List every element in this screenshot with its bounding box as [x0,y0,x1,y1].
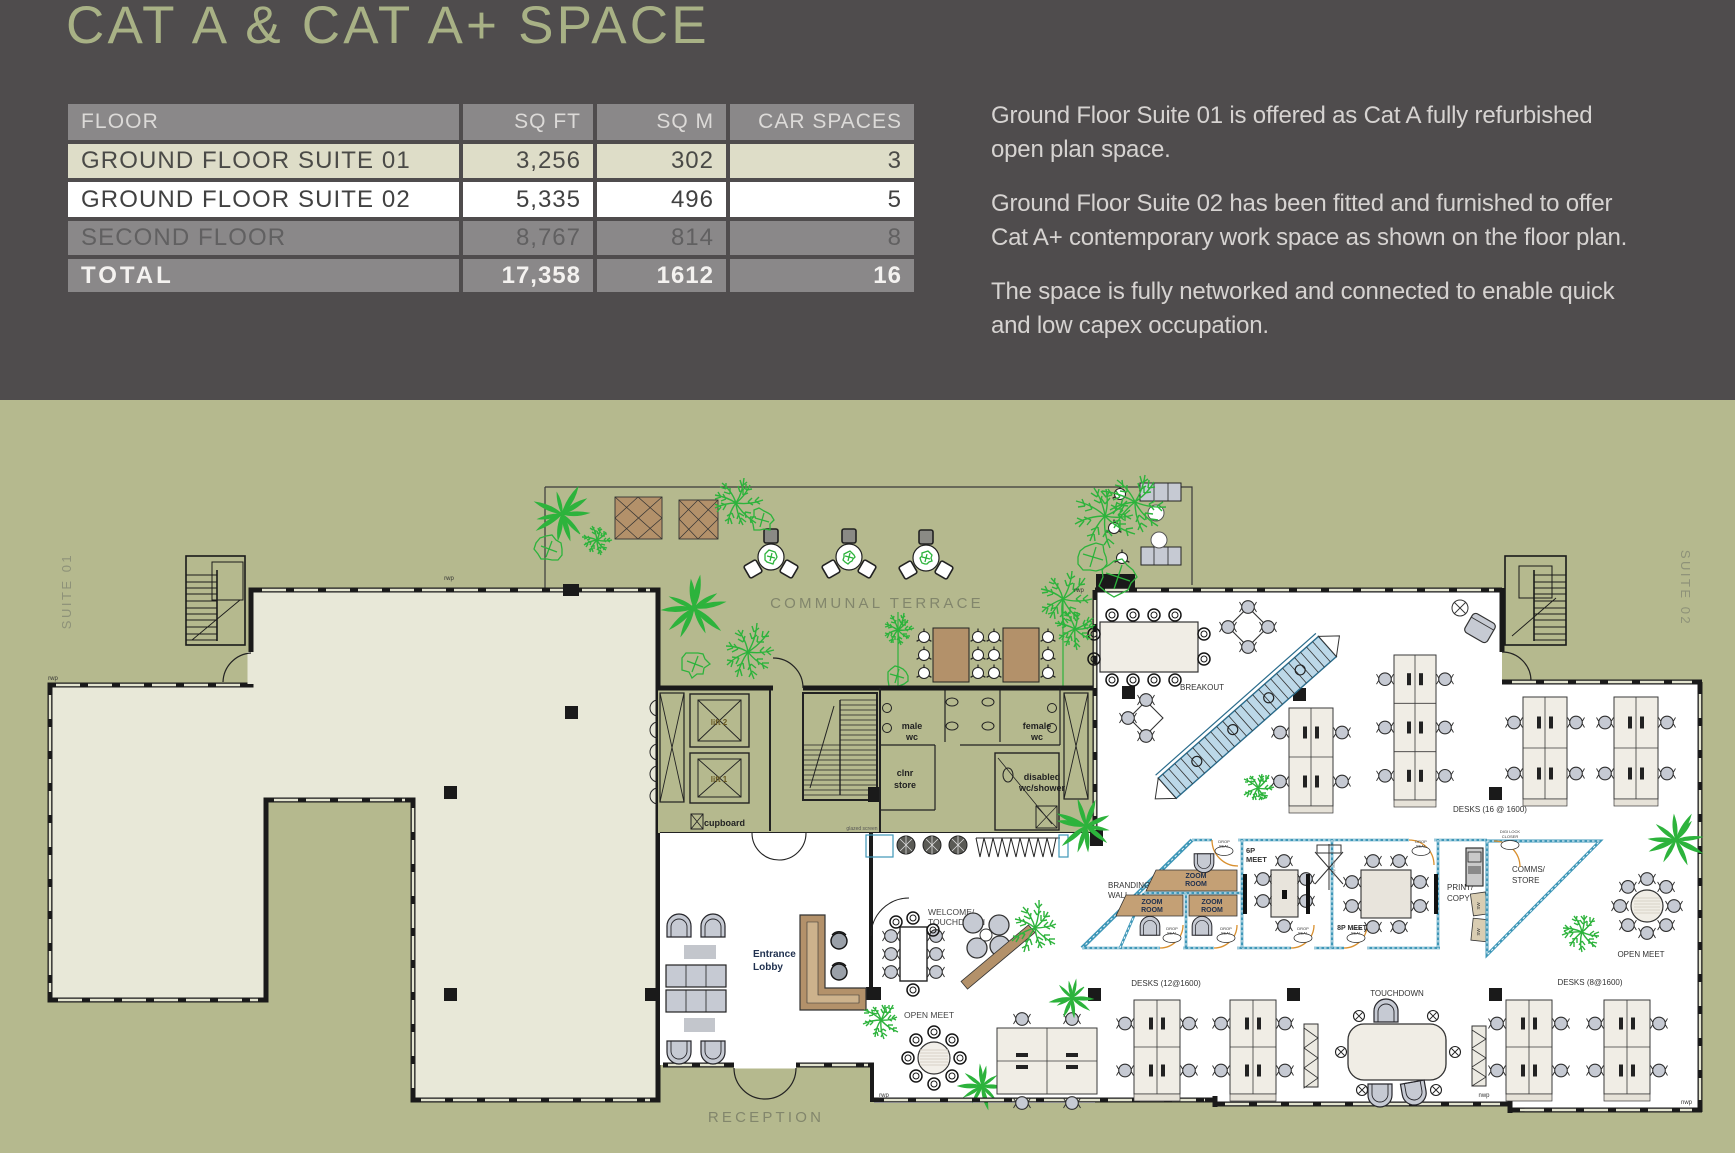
svg-text:MEET: MEET [1246,855,1267,864]
svg-text:lift 1: lift 1 [711,775,728,784]
svg-text:COPY: COPY [1447,894,1470,903]
svg-text:ROOM: ROOM [1185,881,1207,888]
svg-text:clnr: clnr [897,768,914,778]
svg-text:disabled: disabled [1024,772,1061,782]
svg-text:SEAL: SEAL [1416,844,1427,849]
svg-text:lift 2: lift 2 [711,718,728,727]
svg-text:wc: wc [905,732,918,742]
svg-text:female: female [1023,721,1052,731]
svg-text:SEAL: SEAL [1221,931,1232,936]
svg-text:rwp: rwp [1074,588,1084,594]
svg-text:SEAL: SEAL [1167,931,1178,936]
svg-text:cupboard: cupboard [704,818,745,828]
svg-text:TOUCHDOWN: TOUCHDOWN [1370,989,1424,998]
svg-text:STORE: STORE [1512,876,1539,885]
svg-text:SUITE 02: SUITE 02 [1678,550,1693,626]
svg-text:Lobby: Lobby [753,962,783,973]
svg-text:ROOM: ROOM [1201,907,1223,914]
svg-text:BRANDING: BRANDING [1108,881,1150,890]
svg-text:ZOOM: ZOOM [1186,873,1207,880]
svg-text:rwp: rwp [48,676,58,682]
svg-text:DESKS (16 @ 1600): DESKS (16 @ 1600) [1453,805,1527,814]
svg-text:BREAKOUT: BREAKOUT [1180,683,1224,692]
svg-text:ZOOM: ZOOM [1142,899,1163,906]
svg-text:nwp: nwp [1478,1093,1490,1099]
svg-text:wc/shower: wc/shower [1018,783,1066,793]
svg-text:ZOOM: ZOOM [1202,899,1223,906]
svg-text:rwp: rwp [879,1093,889,1099]
svg-text:ROOM: ROOM [1141,907,1163,914]
svg-text:SEAL: SEAL [1298,931,1309,936]
svg-text:glazed screen: glazed screen [846,826,877,832]
svg-text:SUITE 01: SUITE 01 [59,553,74,629]
svg-text:COMMUNAL TERRACE: COMMUNAL TERRACE [770,595,984,612]
svg-text:COMMS/: COMMS/ [1512,865,1546,874]
svg-text:rwp: rwp [444,576,454,582]
svg-text:OPEN MEET: OPEN MEET [904,1010,954,1020]
svg-text:CLOSER: CLOSER [1502,834,1519,839]
svg-text:6P: 6P [1246,846,1255,855]
svg-text:male: male [902,721,923,731]
svg-text:Entrance: Entrance [753,949,796,960]
svg-text:RECEPTION: RECEPTION [708,1109,824,1126]
svg-text:8P MEET: 8P MEET [1337,925,1368,932]
svg-text:SW: SW [1476,928,1481,936]
svg-text:SW: SW [1476,902,1481,910]
svg-text:New Wall: New Wall [1332,860,1337,877]
svg-text:SEAL: SEAL [1219,844,1230,849]
svg-text:OPEN MEET: OPEN MEET [1617,950,1664,959]
svg-text:store: store [894,780,916,790]
svg-text:DESKS (8@1600): DESKS (8@1600) [1557,978,1622,987]
svg-text:DESKS (12@1600): DESKS (12@1600) [1131,979,1201,988]
svg-text:wc: wc [1030,732,1043,742]
svg-text:nwp: nwp [1681,1100,1693,1106]
